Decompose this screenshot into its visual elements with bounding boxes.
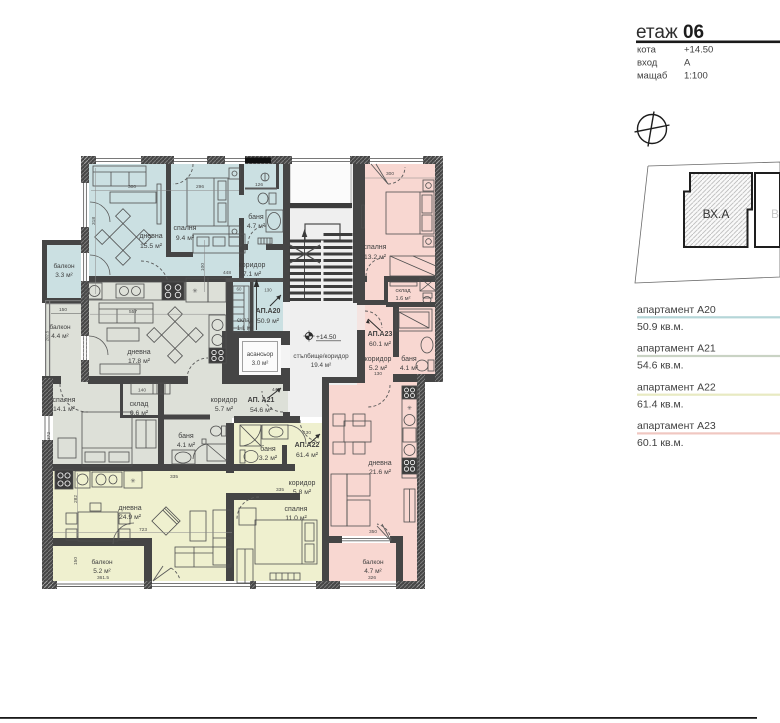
svg-text:апартамент А23: апартамент А23 (637, 420, 716, 432)
svg-text:баня: баня (248, 213, 264, 221)
svg-text:4.1 м²: 4.1 м² (400, 365, 419, 372)
svg-text:4.1 м²: 4.1 м² (177, 442, 196, 449)
svg-text:кота: кота (637, 45, 657, 56)
svg-text:баня: баня (401, 355, 417, 363)
svg-text:1:100: 1:100 (684, 71, 708, 82)
svg-text:✳: ✳ (130, 477, 136, 485)
svg-text:61.4 кв.м.: 61.4 кв.м. (637, 398, 684, 410)
svg-text:24.9 м²: 24.9 м² (119, 514, 142, 521)
svg-text:282: 282 (73, 495, 79, 503)
svg-text:4.4 м²: 4.4 м² (51, 333, 69, 340)
svg-text:11.0 м²: 11.0 м² (285, 515, 307, 522)
svg-text:350: 350 (369, 529, 377, 535)
svg-text:5.7 м²: 5.7 м² (215, 406, 234, 413)
svg-text:296: 296 (196, 184, 204, 190)
svg-text:60.1 м²: 60.1 м² (369, 341, 392, 348)
svg-text:150: 150 (73, 557, 79, 565)
svg-text:5.2 м²: 5.2 м² (369, 365, 388, 372)
svg-text:140: 140 (138, 388, 146, 394)
svg-text:60: 60 (237, 287, 242, 292)
svg-text:372: 372 (46, 432, 52, 440)
svg-text:✳: ✳ (192, 287, 198, 295)
svg-text:14.1 м²: 14.1 м² (53, 406, 76, 413)
svg-text:коридор: коридор (239, 262, 266, 269)
svg-text:0.6 м²: 0.6 м² (130, 410, 149, 417)
svg-text:448: 448 (223, 270, 231, 276)
svg-text:балкон: балкон (53, 262, 75, 270)
svg-text:склад: склад (130, 401, 149, 408)
svg-text:54.6 кв.м.: 54.6 кв.м. (637, 360, 684, 372)
svg-text:спалня: спалня (174, 225, 197, 232)
svg-text:+14.50: +14.50 (684, 45, 713, 56)
svg-text:апартамент А20: апартамент А20 (637, 304, 716, 316)
svg-text:13.2 м²: 13.2 м² (364, 254, 387, 261)
svg-text:1.6 м²: 1.6 м² (395, 296, 410, 302)
svg-text:61.4 м²: 61.4 м² (296, 452, 319, 459)
svg-text:балкон: балкон (362, 558, 384, 566)
svg-text:АП.А22: АП.А22 (295, 442, 320, 449)
svg-text:19.4 м²: 19.4 м² (311, 362, 331, 369)
svg-text:4.7 м²: 4.7 м² (364, 568, 382, 575)
svg-text:300: 300 (386, 171, 394, 177)
svg-text:дневна: дневна (139, 233, 162, 240)
svg-text:21.6 м²: 21.6 м² (369, 469, 392, 476)
svg-text:В: В (771, 207, 779, 221)
svg-text:723: 723 (139, 527, 147, 533)
svg-text:спалня: спалня (53, 397, 76, 404)
svg-text:3.3 м²: 3.3 м² (55, 272, 73, 279)
svg-text:балкон: балкон (91, 558, 113, 566)
svg-text:спалня: спалня (285, 506, 308, 513)
svg-text:мащаб: мащаб (637, 71, 668, 82)
svg-text:126: 126 (255, 182, 263, 188)
svg-text:4.7 м²: 4.7 м² (247, 223, 266, 230)
svg-text:дневна: дневна (368, 460, 391, 467)
svg-text:баня: баня (260, 445, 276, 453)
svg-text:балкон: балкон (49, 323, 71, 331)
svg-text:АП.А20: АП.А20 (256, 308, 281, 315)
svg-text:50.9 м²: 50.9 м² (257, 318, 280, 325)
svg-text:А: А (684, 58, 691, 69)
svg-text:130: 130 (264, 288, 272, 293)
svg-text:15.5 м²: 15.5 м² (140, 243, 163, 250)
svg-text:АП. А21: АП. А21 (248, 397, 275, 404)
svg-text:7.1 м²: 7.1 м² (243, 271, 262, 278)
svg-text:60.1 кв.м.: 60.1 кв.м. (637, 437, 684, 449)
svg-text:326: 326 (368, 575, 376, 581)
svg-text:вход: вход (637, 58, 658, 69)
svg-text:+14.50: +14.50 (316, 334, 337, 341)
svg-text:130: 130 (374, 371, 382, 377)
svg-text:асансьор: асансьор (247, 351, 274, 358)
svg-text:361.5: 361.5 (97, 575, 109, 581)
svg-text:17.8 м²: 17.8 м² (128, 358, 151, 365)
svg-text:335: 335 (170, 474, 178, 480)
svg-text:300: 300 (128, 184, 136, 190)
svg-text:коридор: коридор (289, 480, 316, 487)
svg-text:50.9 кв.м.: 50.9 кв.м. (637, 321, 684, 333)
svg-text:ВХ.А: ВХ.А (703, 207, 730, 221)
svg-text:спалня: спалня (364, 244, 387, 251)
svg-text:3.2 м²: 3.2 м² (259, 455, 278, 462)
svg-text:дневна: дневна (118, 505, 141, 512)
svg-text:склад: склад (237, 318, 254, 324)
svg-text:✳: ✳ (407, 405, 412, 412)
svg-text:баня: баня (178, 432, 194, 440)
svg-text:202.5: 202.5 (45, 330, 50, 341)
svg-text:1.1 м²: 1.1 м² (237, 326, 253, 332)
svg-text:АП.А23: АП.А23 (368, 331, 393, 338)
svg-text:54.6 м²: 54.6 м² (250, 407, 273, 414)
svg-text:440: 440 (272, 387, 280, 393)
svg-text:стълбище/коридор: стълбище/коридор (293, 352, 349, 360)
svg-text:335: 335 (276, 487, 284, 493)
svg-text:130: 130 (303, 430, 311, 436)
svg-text:коридор: коридор (211, 397, 238, 404)
svg-text:5.2 м²: 5.2 м² (93, 568, 111, 575)
svg-text:318: 318 (91, 217, 97, 225)
svg-text:коридор: коридор (365, 356, 392, 363)
svg-text:150: 150 (395, 560, 401, 568)
svg-text:3.0 м²: 3.0 м² (252, 360, 269, 367)
svg-text:100: 100 (200, 263, 206, 271)
svg-text:дневна: дневна (127, 349, 150, 356)
svg-text:апартамент А21: апартамент А21 (637, 343, 716, 355)
svg-text:етаж 06: етаж 06 (636, 22, 704, 43)
svg-text:9.4 м²: 9.4 м² (176, 235, 195, 242)
svg-text:склад: склад (396, 288, 412, 294)
svg-text:5.8 м²: 5.8 м² (293, 489, 312, 496)
svg-text:150: 150 (59, 307, 67, 313)
svg-text:апартамент А22: апартамент А22 (637, 381, 716, 393)
